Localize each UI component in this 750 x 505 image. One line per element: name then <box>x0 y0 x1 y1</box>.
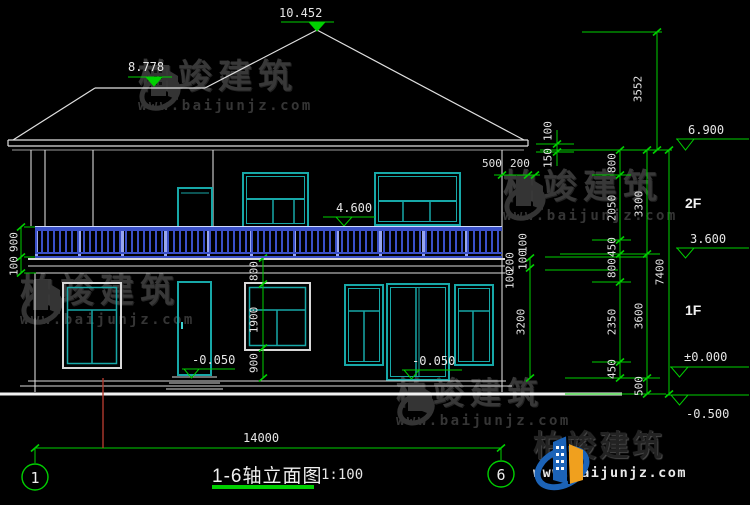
dim-railing-height: 900 <box>9 232 20 252</box>
dim-eave-overhang-500: 500 <box>482 158 502 169</box>
elevation-door-left: -0.050 <box>192 354 235 366</box>
dim-chain-inner-5: 450 <box>607 359 618 379</box>
dim-roof-height: 3552 <box>633 76 644 103</box>
elevation-roof-peak: 10.452 <box>279 7 322 19</box>
dim-window-chain-0: 800 <box>249 261 260 281</box>
elevation-roof-low: 8.778 <box>128 61 164 73</box>
railing-balusters <box>35 231 502 252</box>
dim-eave-overhang-200: 200 <box>510 158 530 169</box>
dim-chain-inner-0: 800 <box>607 153 618 173</box>
drawing-scale: 1:100 <box>321 467 363 483</box>
brand-logo-color-icon <box>533 432 595 492</box>
dim-chain-outer: 7400 <box>655 259 666 286</box>
dim-chain-mid-0: 3300 <box>634 191 645 218</box>
dim-balcony-edge-3: 100 <box>505 269 516 289</box>
railing-bottom-rail <box>35 252 502 258</box>
elevation-eave: 6.900 <box>688 124 724 136</box>
dim-eave-100: 100 <box>543 121 554 141</box>
elevation-zero: ±0.000 <box>684 351 727 363</box>
dim-window-chain-2: 900 <box>249 353 260 373</box>
dim-eave-150: 150 <box>543 148 554 168</box>
axis-bubble-1: 1 <box>30 469 39 487</box>
dim-chain-inner-4: 2350 <box>607 309 618 336</box>
elevation-door-right: -0.050 <box>412 355 455 367</box>
ticks-chain-outer <box>653 29 673 398</box>
elevation-site: -0.500 <box>686 408 729 420</box>
second-floor-openings <box>178 173 460 227</box>
dim-chain-inner-1: 2050 <box>607 195 618 222</box>
elevation-balcony: 4.600 <box>336 202 372 214</box>
elevation-2f: 3.600 <box>690 233 726 245</box>
roof-outline <box>8 30 528 150</box>
balcony-railing <box>35 226 502 257</box>
dim-chain-inner-2: 450 <box>607 237 618 257</box>
dim-chain-inner-3: 800 <box>607 258 618 278</box>
dim-balcony-edge-1: 100 <box>518 250 529 270</box>
dim-1f-opening: 3200 <box>516 309 527 336</box>
dim-slab-100: 100 <box>9 256 20 276</box>
dim-chain-mid-2: 500 <box>634 376 645 396</box>
drawing-title: 1-6轴立面图 <box>212 461 322 488</box>
dim-overall-width: 14000 <box>243 432 279 444</box>
elevation-drawing-canvas: 柏竣建筑 www.baijunjz.com 柏竣建筑 www.baijunjz.… <box>0 0 750 505</box>
brand-logo-footer: 柏竣建筑 www.baijunjz.com <box>533 432 687 481</box>
balcony-slab <box>28 259 505 273</box>
floor-label-2f: 2F <box>685 195 701 211</box>
axis-bubble-6: 6 <box>496 466 505 484</box>
dim-chain-mid-1: 3600 <box>634 303 645 330</box>
floor-label-1f: 1F <box>685 302 701 318</box>
dim-window-chain-1: 1900 <box>249 307 260 334</box>
ticks-misc <box>17 141 561 452</box>
